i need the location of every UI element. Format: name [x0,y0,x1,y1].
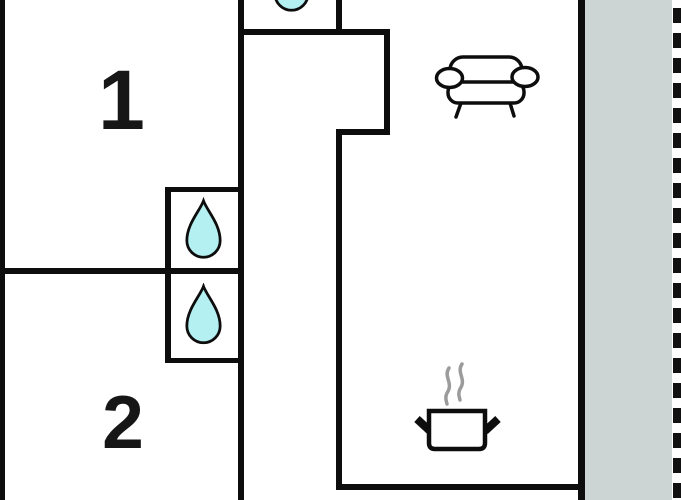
wall-living-step [336,129,390,135]
cooking-pot-icon [411,357,501,453]
room-1-label: 1 [81,58,162,142]
wall-utility-bottom [238,29,390,35]
wall-outer-left [0,0,5,500]
steam-icon [446,364,463,404]
terrace-area [585,0,672,500]
wall-bathroom-left [165,187,171,363]
wall-outer-right [578,0,585,500]
room-2-label: 2 [83,385,163,460]
floor-plan: 1 2 [0,0,681,500]
water-drop-icon [273,0,310,13]
wall-room-divider [0,268,244,274]
sofa-icon [430,50,540,122]
wall-bathroom-bottom [165,358,244,363]
water-drop-icon [185,283,222,347]
wall-living-upper-left [384,29,390,135]
water-drop-icon [185,197,222,262]
wall-living-left [336,129,342,490]
wall-corridor-left [238,0,244,500]
wall-bathroom-top [165,187,244,192]
wall-kitchen-bottom [336,484,585,490]
plot-boundary-dashed-line [673,0,681,500]
